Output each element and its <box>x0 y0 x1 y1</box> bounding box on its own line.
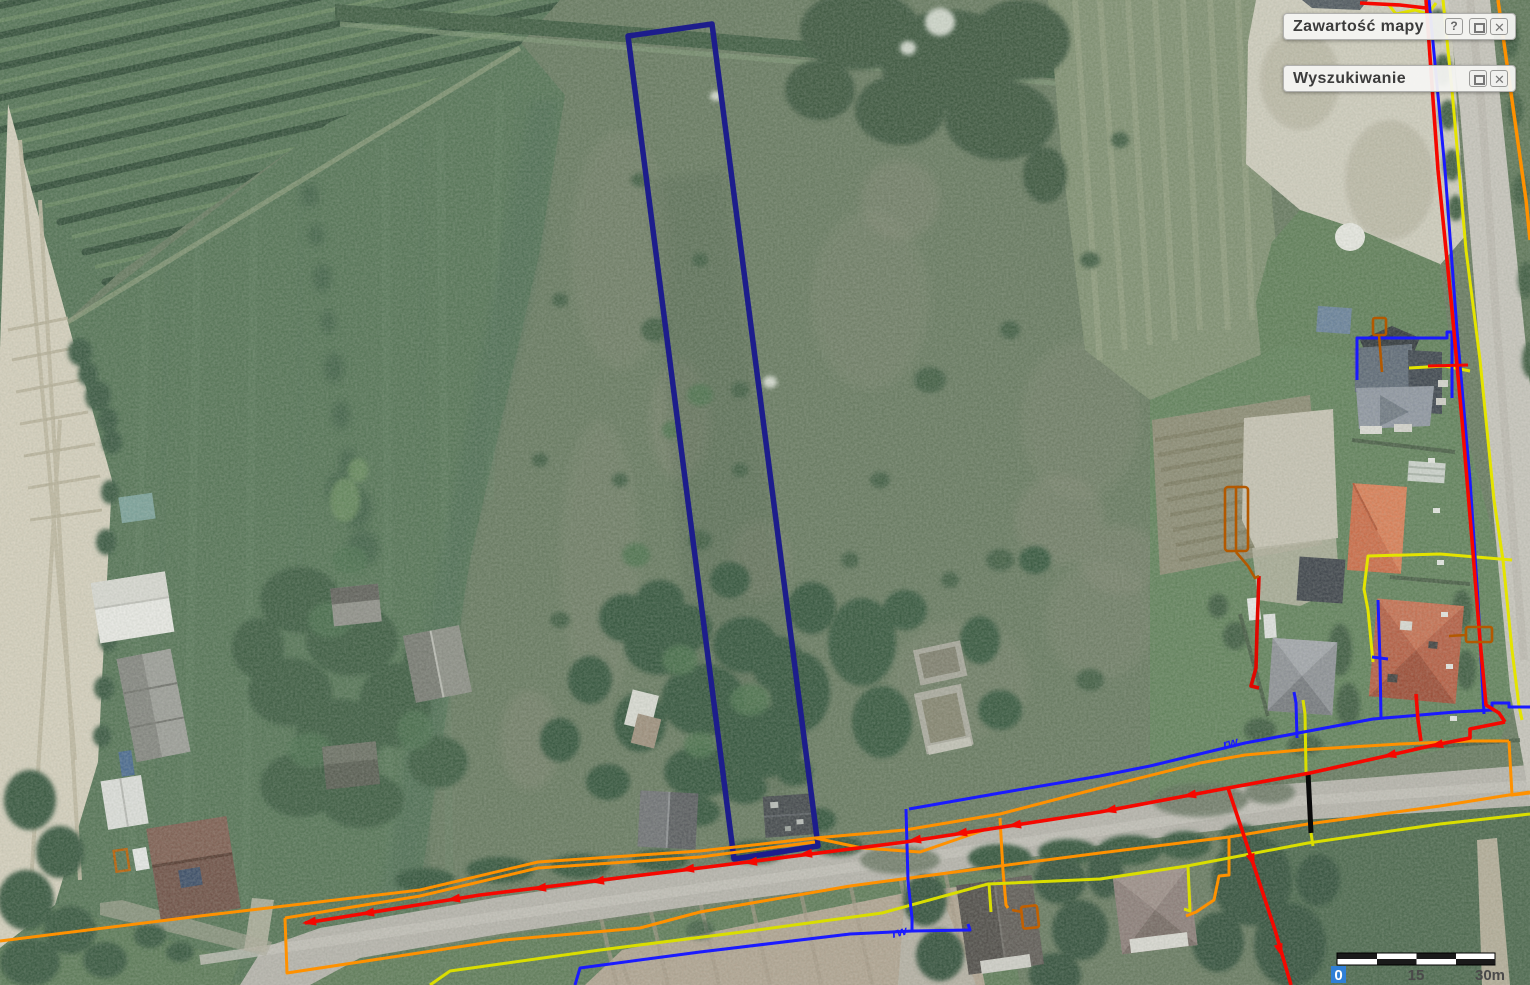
svg-text:15: 15 <box>1408 967 1425 984</box>
svg-text:0: 0 <box>1334 967 1342 984</box>
svg-text:30m: 30m <box>1475 967 1505 984</box>
